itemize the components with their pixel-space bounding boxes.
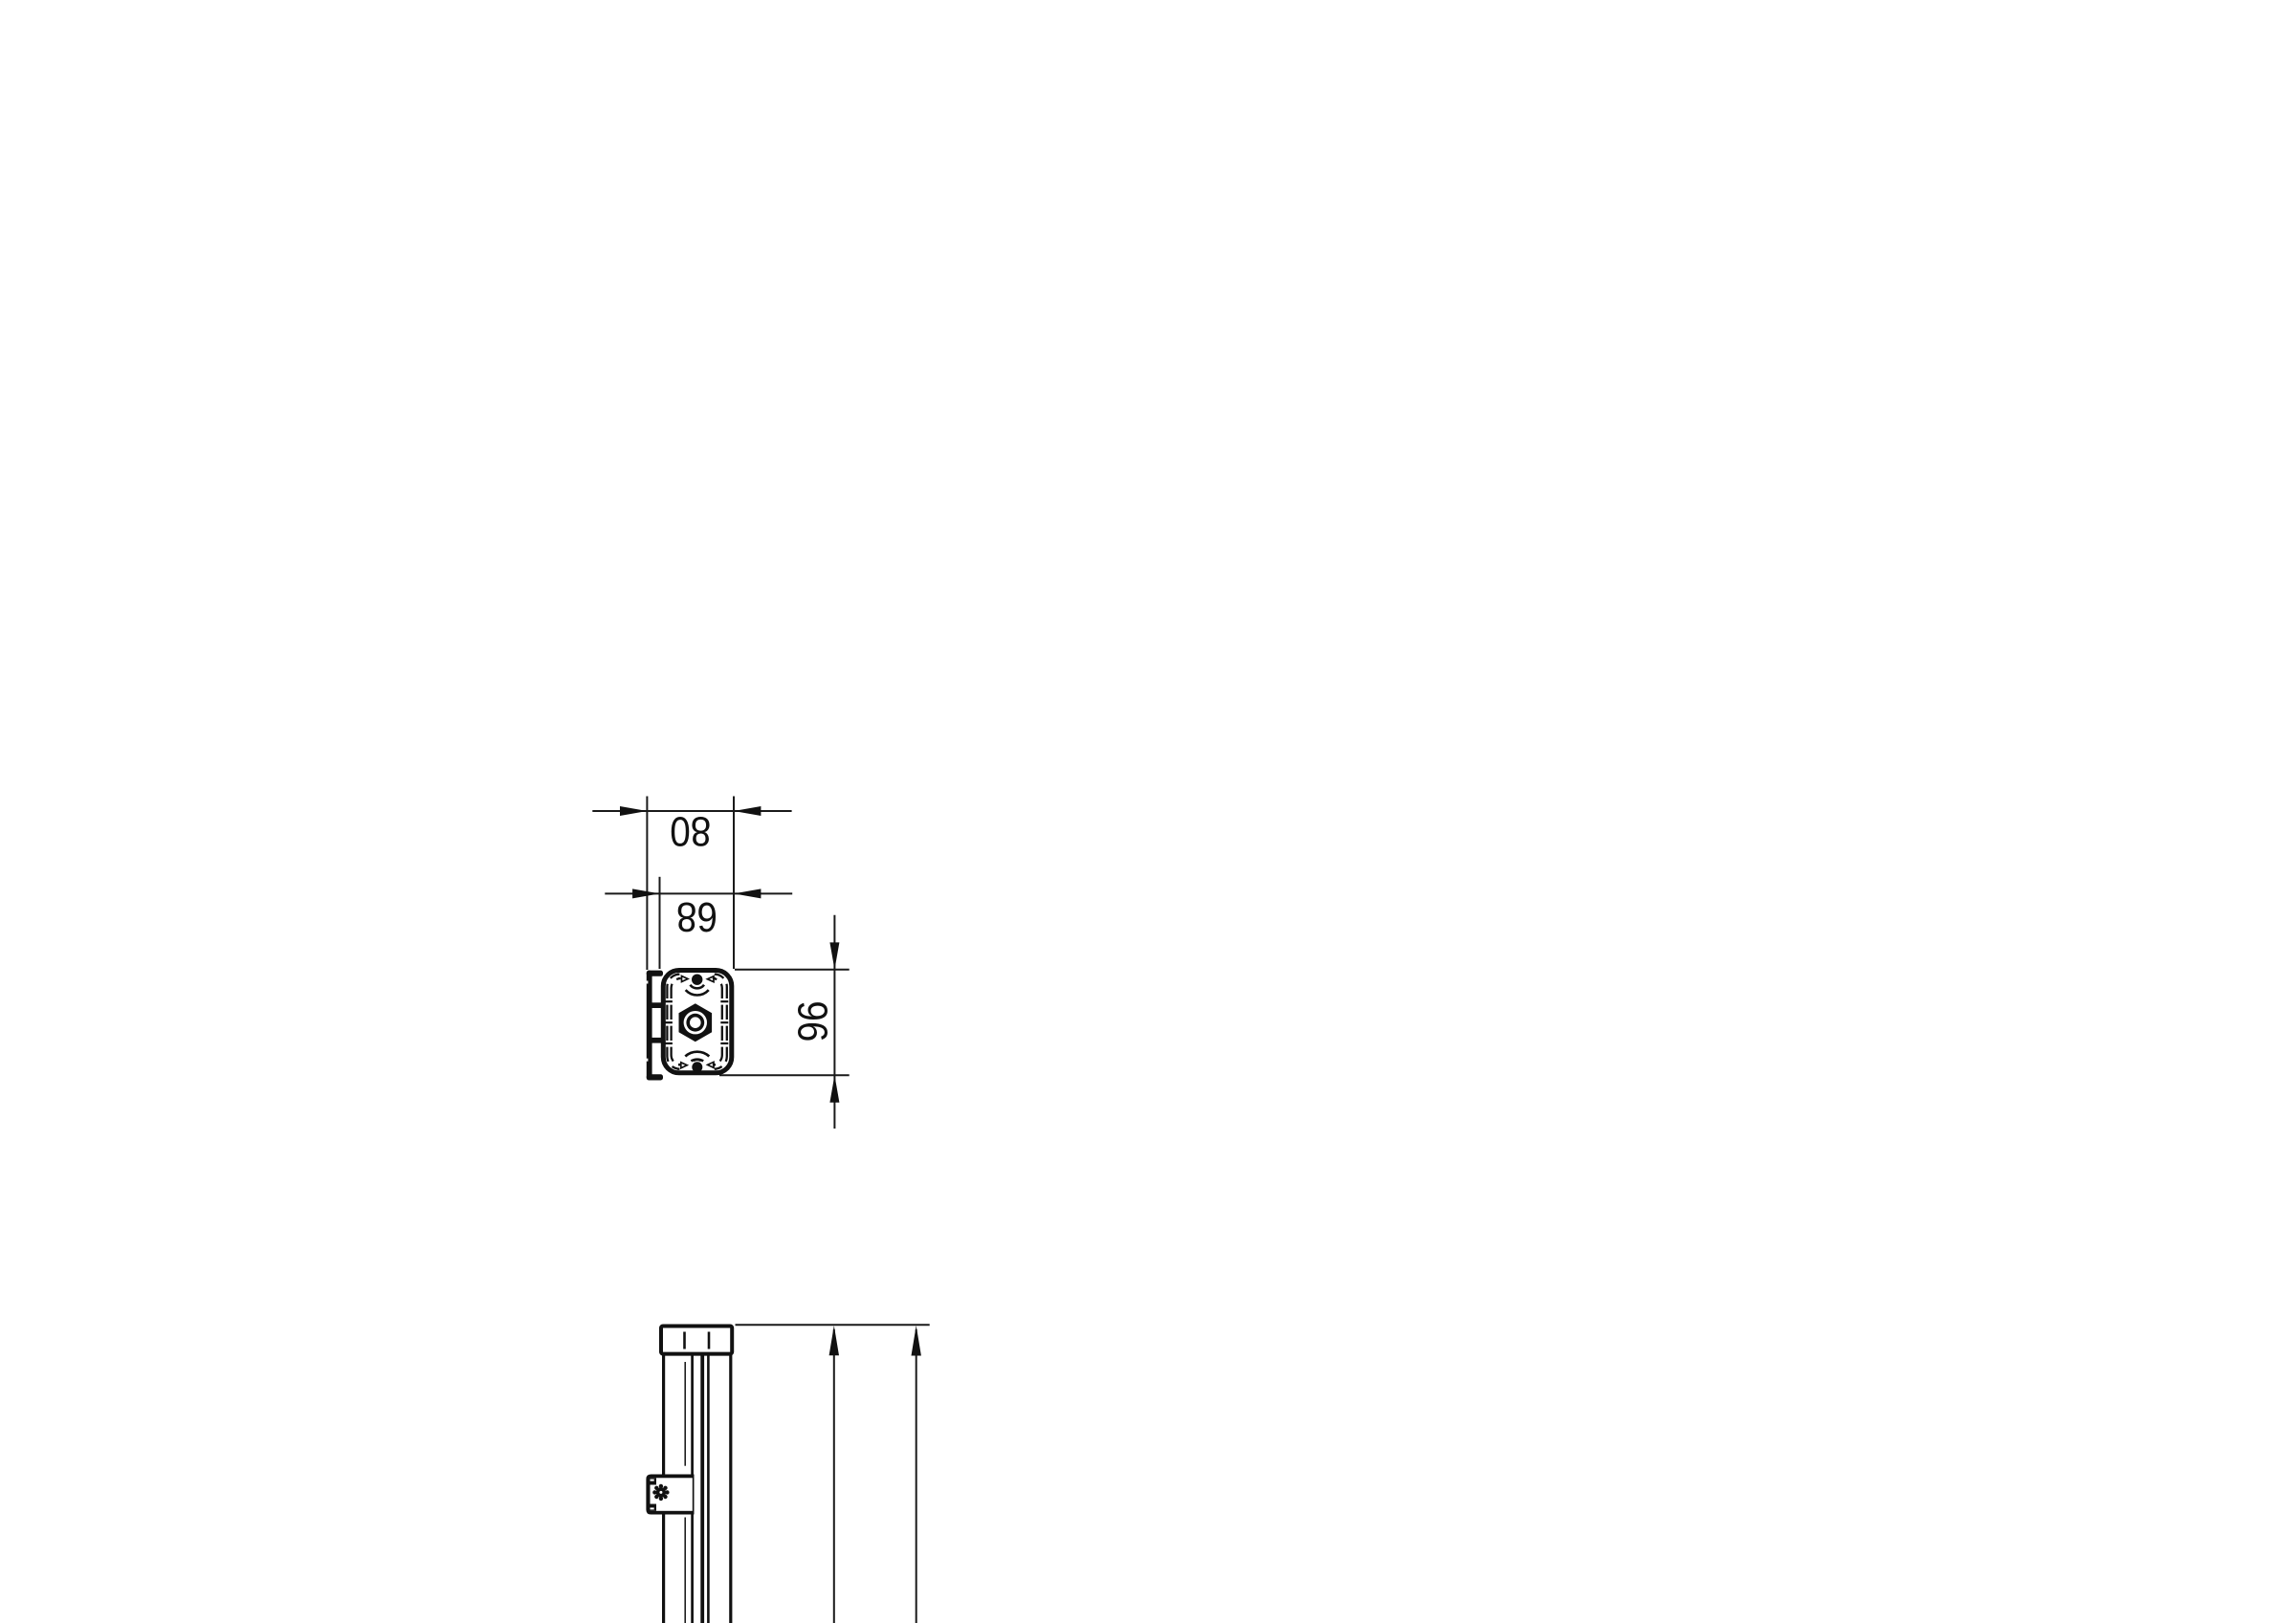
svg-text:80: 80 xyxy=(670,808,711,854)
svg-text:96: 96 xyxy=(789,1000,835,1042)
svg-text:68: 68 xyxy=(676,893,717,939)
